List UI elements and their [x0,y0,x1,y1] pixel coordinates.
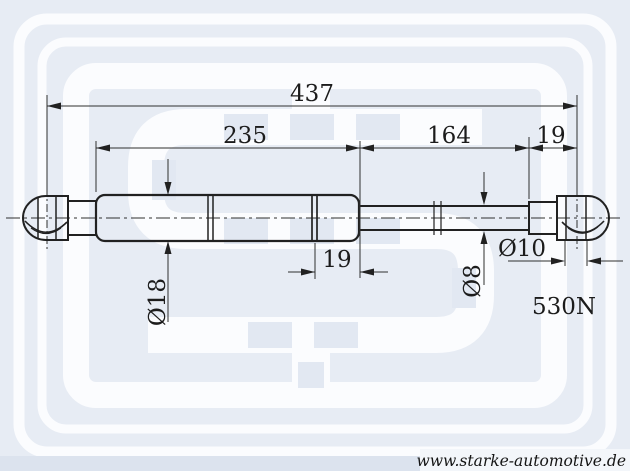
force-rating-label: 530N [532,294,596,320]
dim-rod-length-label: 164 [427,123,471,149]
dim-right-eyelet-length-label: 19 [536,123,565,149]
dim-cylinder-diameter-label: Ø18 [145,278,171,326]
dim-cylinder-end-segment-label: 19 [322,247,351,273]
dim-total-length-label: 437 [290,81,334,107]
dim-cylinder-length-label: 235 [223,123,267,149]
footer-website-url: www.starke-automotive.de [417,452,626,470]
drawing-svg: 437 235 164 19 19 Ø18 Ø8 Ø10 530N www.st… [0,0,630,471]
dim-eyelet-bore-diameter-label: Ø10 [498,236,546,262]
dim-rod-diameter-label: Ø8 [460,264,486,298]
gas-spring-technical-drawing: 437 235 164 19 19 Ø18 Ø8 Ø10 530N www.st… [0,0,630,471]
